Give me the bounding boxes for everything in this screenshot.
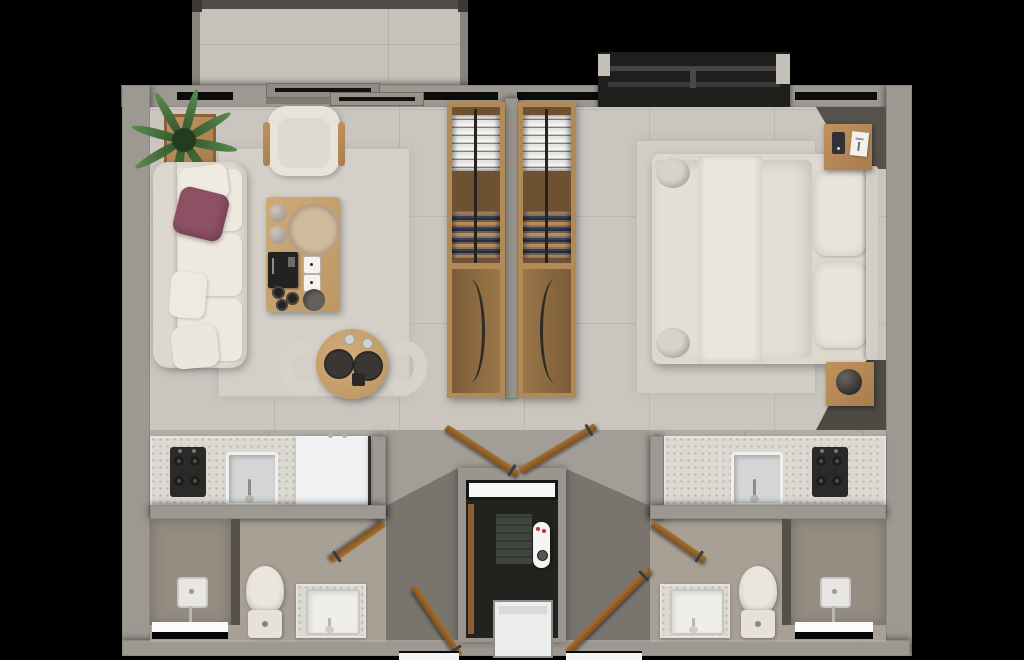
bath-window: [152, 622, 228, 632]
runner-blanket: [698, 156, 762, 362]
kitchen-sink: [731, 452, 783, 506]
armchair-arm: [338, 122, 345, 166]
faucet-icon: [245, 495, 254, 503]
decor-bowl-gray: [303, 289, 325, 311]
shower-floor: [791, 519, 886, 625]
closet-cabinet: [452, 269, 500, 393]
decor-dice: [303, 256, 321, 274]
window-slit: [795, 92, 877, 100]
sliding-door-glass: [339, 97, 415, 101]
throw-pillow-white: [170, 324, 220, 371]
toilet-tank: [248, 610, 282, 638]
shower-head: [820, 577, 851, 608]
glass: [344, 334, 355, 345]
toilet-tank: [741, 610, 775, 638]
cabinet-bow-handle: [540, 279, 555, 383]
closet-cabinet: [523, 269, 571, 393]
ledge-post: [690, 68, 696, 88]
toilet: [739, 566, 777, 614]
napkin-box: [352, 373, 365, 386]
armchair-seat: [278, 118, 330, 168]
balcony-tile-joint: [388, 8, 389, 88]
service-ledge: [598, 52, 790, 108]
sliding-door-panel: [330, 92, 424, 106]
ledge-cap: [598, 54, 610, 76]
nightstand: [826, 362, 874, 406]
wardrobe-divider-wall: [505, 98, 518, 399]
cooktop: [812, 447, 848, 497]
bath-window: [795, 622, 873, 632]
bath-window-frame: [152, 632, 228, 639]
shower-glass-divider: [782, 519, 791, 625]
decor-tray: [287, 203, 341, 257]
floor-plan-render: [0, 0, 1024, 660]
dining-table: [316, 329, 388, 399]
utility-interior: [466, 500, 558, 638]
kitchen-sink: [226, 452, 278, 506]
ledge-cap: [776, 54, 790, 84]
bath-window-frame: [795, 632, 873, 639]
balcony: [192, 0, 468, 88]
closet-rail: [545, 109, 548, 263]
decor-bowl-small: [276, 299, 288, 311]
balcony-railing: [192, 0, 468, 9]
decor-sphere: [269, 226, 287, 244]
phone: [832, 132, 845, 154]
decor-book: [268, 252, 298, 288]
shower-head: [177, 577, 208, 608]
faucet-icon: [689, 626, 698, 633]
balcony-rail-right: [460, 0, 468, 88]
coffee-table: [266, 197, 340, 312]
open-door-leaf: [468, 504, 474, 634]
vanity-counter: [660, 584, 730, 638]
balcony-post: [458, 0, 468, 12]
refrigerator: [296, 436, 371, 508]
washing-machine: [493, 600, 553, 658]
faucet-icon: [325, 626, 334, 633]
armchair-arm: [263, 122, 270, 166]
left-wall: [122, 85, 150, 656]
towel-stack: [496, 514, 532, 564]
balcony-post: [192, 0, 202, 12]
kitchen-bath-wall: [650, 505, 886, 519]
bed-pillow: [814, 262, 866, 348]
balcony-tile-joint: [192, 44, 468, 45]
entry-threshold: [566, 651, 642, 660]
double-bed: [652, 154, 868, 364]
closet-rail: [474, 109, 477, 263]
rolled-cushion: [656, 328, 690, 358]
window-slit: [517, 92, 598, 100]
shower-glass-divider: [231, 519, 240, 625]
entry-threshold: [399, 651, 459, 660]
decor-bowl-small: [272, 286, 285, 299]
wardrobe-left: [447, 102, 505, 398]
toilet: [246, 566, 284, 614]
wardrobe-right: [518, 102, 576, 398]
vanity-counter: [296, 584, 366, 638]
utility-closet: [458, 468, 566, 642]
rolled-cushion: [656, 158, 690, 188]
decor-sphere: [269, 204, 287, 222]
bed-pillow: [814, 170, 866, 256]
headboard: [866, 166, 878, 360]
glass: [362, 338, 373, 349]
card: [850, 131, 869, 157]
decor-bowl-small: [286, 292, 299, 305]
kitchen-bath-wall: [150, 505, 386, 519]
water-heater: [533, 522, 550, 568]
cabinet-bow-handle: [470, 279, 485, 383]
nightstand: [824, 124, 872, 170]
faucet-icon: [750, 495, 759, 503]
sphere-lamp: [836, 369, 862, 395]
cooktop: [170, 447, 206, 497]
right-wall: [886, 85, 912, 656]
utility-shelf: [466, 480, 558, 500]
throw-pillow-white: [168, 271, 208, 320]
balcony-rail-left: [192, 0, 200, 88]
window-slit: [424, 92, 498, 100]
window-slit: [177, 92, 233, 100]
plate: [324, 349, 354, 379]
armchair: [268, 106, 340, 176]
